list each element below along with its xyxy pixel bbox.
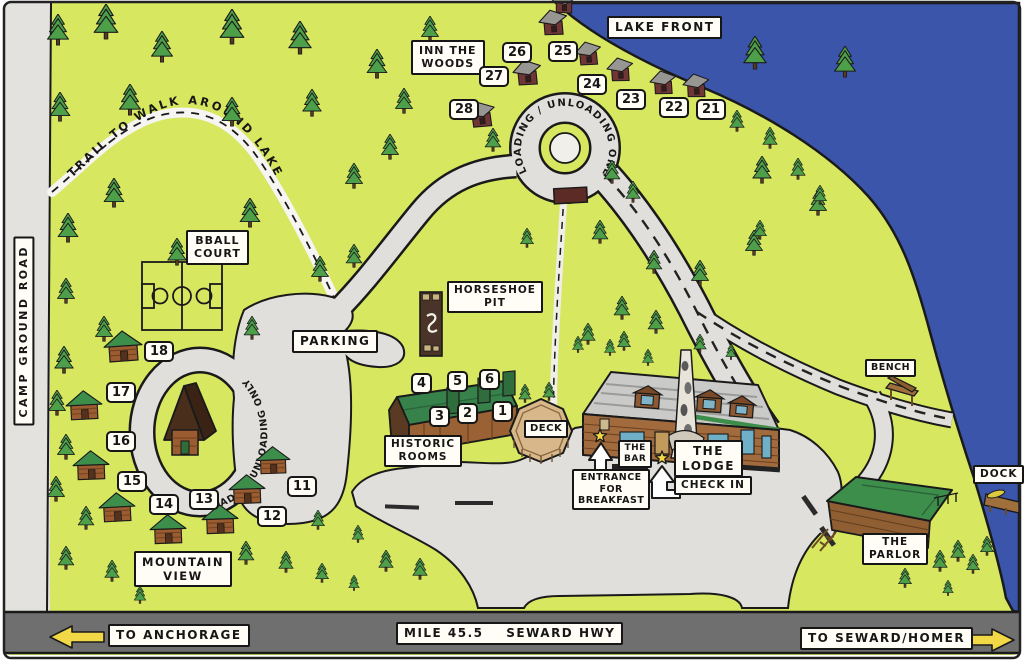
label-mile-marker: MILE 45.5 SEWARD HWY xyxy=(396,622,623,645)
label-inn-the-woods: INN THE WOODS xyxy=(411,40,485,75)
cabin-badge-17: 17 xyxy=(106,382,136,403)
horseshoe-pit xyxy=(420,292,442,356)
room-badge-3: 3 xyxy=(429,406,450,427)
room-badge-6: 6 xyxy=(479,369,500,390)
loop-island xyxy=(550,133,580,163)
label-entrance-breakfast: ENTRANCE FOR BREAKFAST xyxy=(572,469,650,510)
label-bball-court: BBALL COURT xyxy=(186,230,249,265)
room-badge-5: 5 xyxy=(447,371,468,392)
cabin-badge-18: 18 xyxy=(144,341,174,362)
cabin-badge-21: 21 xyxy=(696,99,726,120)
label-bench: BENCH xyxy=(865,359,916,377)
label-check-in: CHECK IN xyxy=(674,476,752,495)
cabin-badge-14: 14 xyxy=(149,494,179,515)
cabin-badge-25: 25 xyxy=(548,41,578,62)
cabin-badge-27: 27 xyxy=(479,66,509,87)
label-horseshoe-pit: HORSESHOE PIT xyxy=(447,281,543,313)
cabin-badge-13: 13 xyxy=(189,489,219,510)
label-dock: DOCK xyxy=(973,465,1024,484)
cabin-badge-24: 24 xyxy=(577,74,607,95)
label-to-seward-homer: TO SEWARD/HOMER xyxy=(800,627,973,650)
cabin-badge-23: 23 xyxy=(616,89,646,110)
room-badge-2: 2 xyxy=(457,403,478,424)
label-the-bar: THE BAR xyxy=(618,440,652,468)
label-parking: PARKING xyxy=(292,330,378,353)
label-lake-front: LAKE FRONT xyxy=(607,16,722,39)
label-the-parlor: THE PARLOR xyxy=(862,533,928,565)
cabin-badge-12: 12 xyxy=(257,506,287,527)
label-historic-rooms: HISTORIC ROOMS xyxy=(384,435,462,467)
label-the-lodge: THE LODGE xyxy=(674,440,743,477)
label-to-anchorage: TO ANCHORAGE xyxy=(108,624,250,647)
label-camp-ground-road: CAMP GROUND ROAD xyxy=(13,237,34,426)
room-badge-1: 1 xyxy=(492,401,513,422)
cabin-badge-28: 28 xyxy=(449,99,479,120)
cabin-badge-15: 15 xyxy=(117,471,147,492)
label-deck: DECK xyxy=(524,420,568,438)
cabin-badge-16: 16 xyxy=(106,431,136,452)
shed xyxy=(554,187,588,204)
room-badge-4: 4 xyxy=(411,373,432,394)
campground-map: TRAIL TO WALK AROUND LAKE LOADING / UNLO… xyxy=(0,0,1024,663)
cabin-badge-22: 22 xyxy=(659,97,689,118)
cabin-badge-26: 26 xyxy=(502,42,532,63)
cabin-badge-11: 11 xyxy=(287,476,317,497)
label-mountain-view: MOUNTAIN VIEW xyxy=(134,551,232,587)
